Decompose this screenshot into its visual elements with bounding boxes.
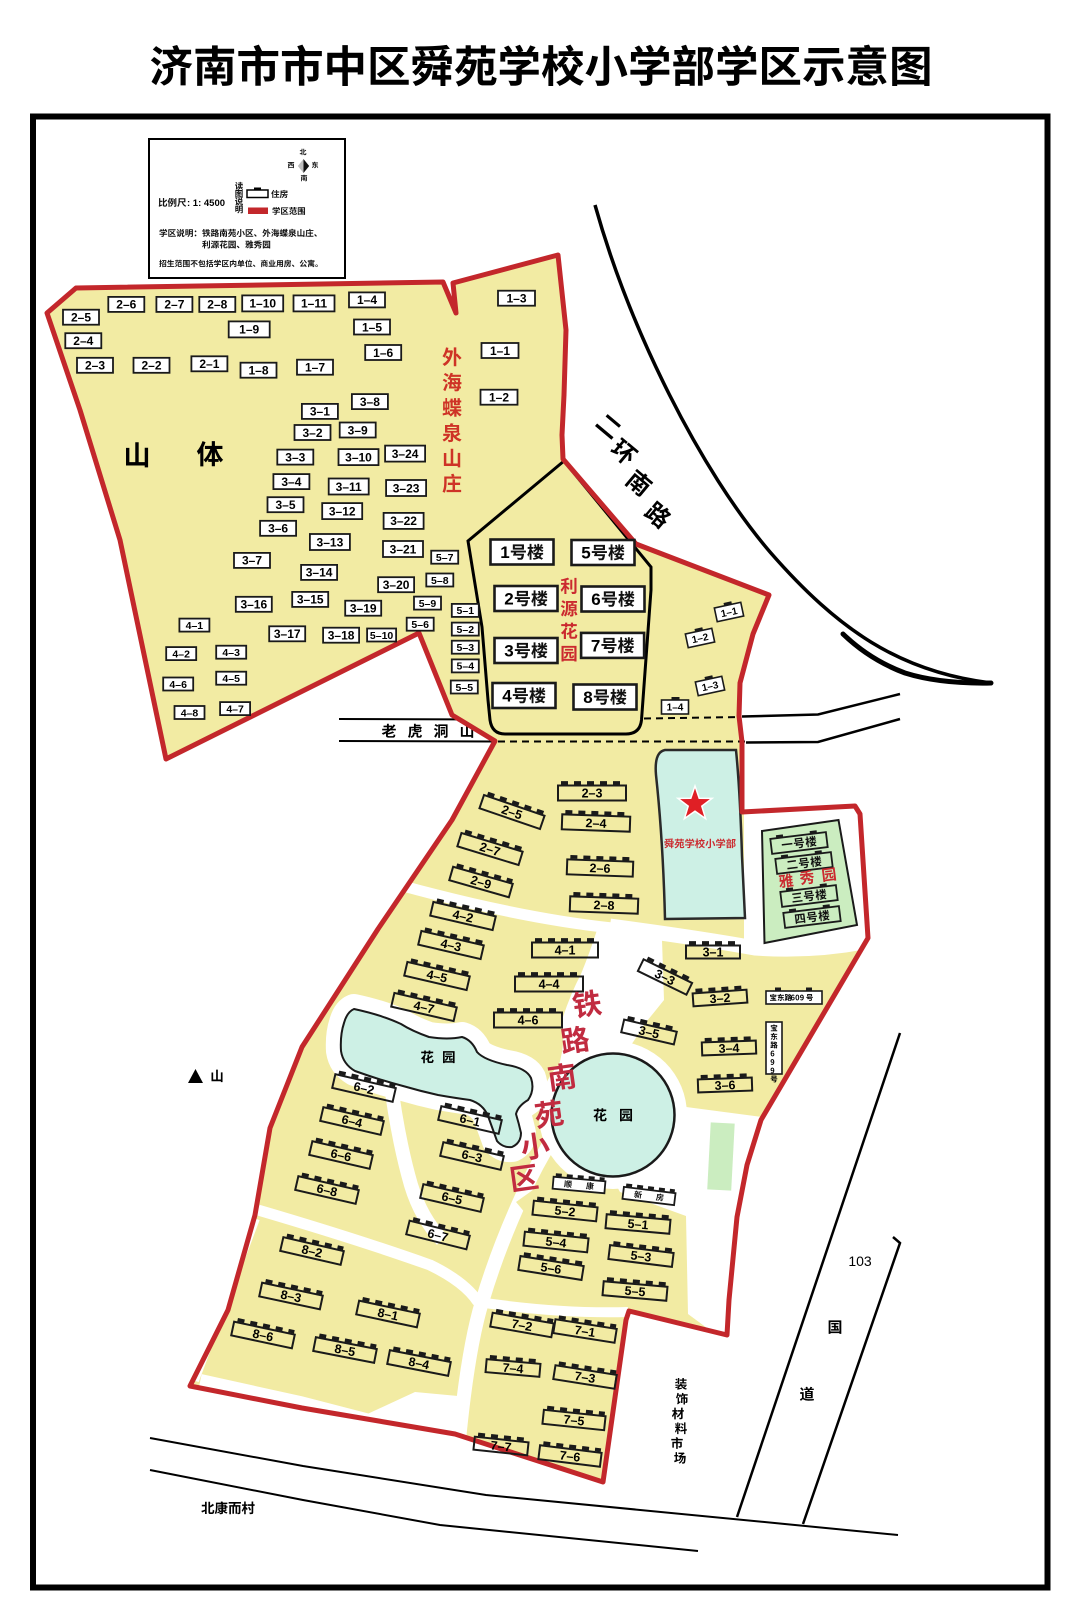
svg-text:1–4: 1–4 (357, 293, 377, 307)
svg-text:5–2: 5–2 (457, 624, 475, 636)
svg-text:3–2: 3–2 (302, 426, 322, 440)
svg-text:7–6: 7–6 (559, 1448, 581, 1464)
svg-text:5–2: 5–2 (554, 1203, 576, 1219)
svg-text:3–13: 3–13 (317, 535, 344, 549)
svg-text:5–4: 5–4 (457, 661, 475, 673)
svg-text:2–6: 2–6 (589, 861, 610, 876)
svg-text:3–5: 3–5 (275, 498, 295, 512)
svg-text:8: 8 (583, 688, 592, 707)
svg-text:7–7: 7–7 (490, 1438, 512, 1454)
svg-text:3–24: 3–24 (392, 447, 419, 461)
svg-text:3–20: 3–20 (383, 578, 410, 592)
svg-text:3–19: 3–19 (350, 602, 377, 616)
svg-text:4–1: 4–1 (186, 620, 204, 632)
svg-text:3–17: 3–17 (274, 627, 301, 641)
svg-text:3–8: 3–8 (360, 395, 380, 409)
svg-text:1–1: 1–1 (490, 344, 510, 358)
svg-text:1–2: 1–2 (489, 391, 509, 405)
svg-text:4–1: 4–1 (555, 944, 576, 958)
svg-text:7–4: 7–4 (502, 1361, 524, 1377)
svg-text:1–11: 1–11 (301, 297, 327, 311)
svg-text:2: 2 (504, 590, 513, 609)
svg-text:1–4: 1–4 (667, 703, 684, 714)
svg-text:2–8: 2–8 (593, 898, 614, 913)
svg-text:2–4: 2–4 (73, 334, 93, 348)
svg-text:4–7: 4–7 (226, 703, 244, 715)
svg-text:2–4: 2–4 (585, 816, 606, 831)
svg-text:3: 3 (504, 642, 513, 661)
svg-text:1–3: 1–3 (506, 292, 526, 306)
svg-text:5–6: 5–6 (411, 619, 429, 631)
svg-text:3–12: 3–12 (329, 504, 356, 518)
svg-text:3–2: 3–2 (709, 991, 731, 1006)
svg-text:5–3: 5–3 (457, 642, 475, 654)
svg-text:5–8: 5–8 (431, 575, 449, 587)
svg-text:103: 103 (848, 1253, 872, 1269)
svg-text:3–6: 3–6 (714, 1078, 735, 1093)
svg-text:2–6: 2–6 (116, 298, 136, 312)
svg-text:1–8: 1–8 (248, 364, 268, 378)
svg-text:1: 1 (500, 543, 509, 562)
svg-text:5–9: 5–9 (419, 598, 437, 610)
svg-text:3–3: 3–3 (285, 450, 305, 464)
svg-text:5–7: 5–7 (436, 552, 454, 564)
svg-text:3–1: 3–1 (703, 946, 724, 960)
svg-text:3–4: 3–4 (718, 1041, 739, 1056)
svg-text:3–6: 3–6 (268, 522, 288, 536)
svg-text:7–5: 7–5 (563, 1412, 585, 1428)
svg-text:3–18: 3–18 (328, 629, 355, 643)
svg-text:3–16: 3–16 (240, 598, 267, 612)
svg-text:5–5: 5–5 (456, 682, 474, 694)
svg-text:4–6: 4–6 (169, 679, 187, 691)
svg-text:4–8: 4–8 (181, 707, 199, 719)
svg-text:3–15: 3–15 (297, 593, 324, 607)
svg-text:5–10: 5–10 (370, 630, 394, 642)
svg-text:1–6: 1–6 (373, 346, 393, 360)
svg-text:6: 6 (591, 590, 600, 609)
svg-text:2–7: 2–7 (164, 298, 184, 312)
svg-text:4–4: 4–4 (539, 978, 560, 992)
svg-text:3–11: 3–11 (336, 480, 362, 494)
svg-text:5–1: 5–1 (627, 1217, 649, 1233)
svg-text:1–9: 1–9 (239, 323, 259, 337)
svg-text:5–1: 5–1 (457, 605, 475, 617)
svg-text:3–9: 3–9 (348, 423, 368, 437)
svg-text:3–10: 3–10 (345, 450, 372, 464)
svg-text:3–23: 3–23 (393, 481, 420, 495)
svg-text:3–21: 3–21 (390, 542, 417, 556)
svg-text:5–5: 5–5 (624, 1284, 646, 1300)
svg-text:4–6: 4–6 (518, 1014, 539, 1028)
svg-text:2–2: 2–2 (141, 359, 161, 373)
svg-text:2–1: 2–1 (199, 357, 219, 371)
svg-text:2–3: 2–3 (582, 787, 603, 801)
svg-text:: 1: 4500: : 1: 4500 (187, 198, 225, 209)
svg-text:7: 7 (591, 637, 600, 656)
svg-text:4: 4 (502, 687, 512, 706)
svg-text:1–5: 1–5 (362, 320, 382, 334)
svg-text:1–7: 1–7 (305, 361, 325, 375)
svg-text:4–5: 4–5 (222, 673, 240, 685)
svg-text:5–3: 5–3 (630, 1248, 652, 1264)
svg-text:3–1: 3–1 (310, 405, 330, 419)
svg-text:2–8: 2–8 (207, 298, 227, 312)
svg-text:3–7: 3–7 (242, 554, 262, 568)
svg-text:5–4: 5–4 (545, 1234, 567, 1250)
svg-text:5: 5 (581, 544, 590, 563)
svg-text:3–14: 3–14 (306, 566, 333, 580)
svg-text:4–3: 4–3 (222, 647, 240, 659)
svg-text:2–3: 2–3 (85, 359, 105, 373)
svg-text:3–4: 3–4 (281, 475, 301, 489)
svg-text:4–2: 4–2 (172, 648, 190, 660)
svg-text:1–10: 1–10 (249, 297, 276, 311)
svg-text:2–5: 2–5 (71, 311, 91, 325)
svg-text:3–22: 3–22 (390, 514, 417, 528)
